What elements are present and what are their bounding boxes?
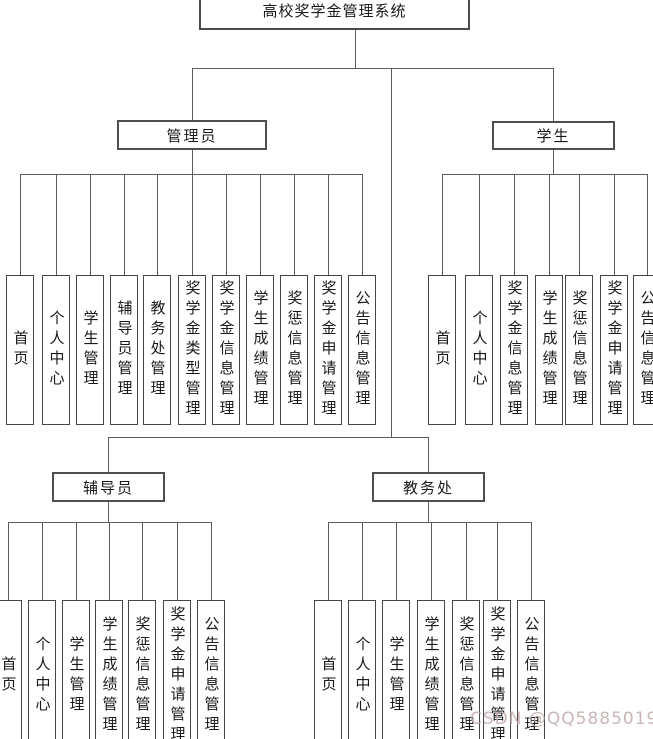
leaf-academic-home: 首页 <box>314 600 342 739</box>
leaf-admin-announcement-info-mgmt: 公告信息管理 <box>348 275 376 425</box>
csdn-watermark: CSDN @QQ58850198 <box>470 709 653 729</box>
leaf-counselor-reward-punishment-info-mgmt: 奖惩信息管理 <box>128 600 156 739</box>
leaf-student-personal-center: 个人中心 <box>465 275 493 425</box>
connector-line <box>549 174 550 275</box>
leaf-admin-scholarship-application-mgmt: 奖学金申请管理 <box>314 275 342 425</box>
leaf-admin-personal-center: 个人中心 <box>42 275 70 425</box>
connector-line <box>8 522 212 523</box>
leaf-admin-academic-office-mgmt: 教务处管理 <box>143 275 171 425</box>
connector-line <box>442 174 648 175</box>
connector-line <box>479 174 480 275</box>
connector-line <box>142 522 143 600</box>
connector-line <box>396 522 397 600</box>
connector-line <box>56 174 57 275</box>
connector-line <box>428 502 429 522</box>
leaf-student-home: 首页 <box>428 275 456 425</box>
connector-line <box>108 502 109 522</box>
leaf-admin-student-grade-mgmt: 学生成绩管理 <box>246 275 274 425</box>
connector-line <box>226 174 227 275</box>
leaf-student-scholarship-application-mgmt: 奖学金申请管理 <box>600 275 628 425</box>
leaf-student-student-grade-mgmt: 学生成绩管理 <box>535 275 563 425</box>
connector-line <box>362 522 363 600</box>
leaf-counselor-home: 首页 <box>0 600 22 739</box>
connector-line <box>553 68 554 121</box>
connector-line <box>328 174 329 275</box>
connector-line <box>108 437 429 438</box>
leaf-counselor-announcement-info-mgmt: 公告信息管理 <box>197 600 225 739</box>
connector-line <box>442 174 443 275</box>
node-admin: 管理员 <box>117 120 267 150</box>
connector-line <box>328 522 329 600</box>
connector-line <box>362 174 363 275</box>
connector-line <box>8 522 9 600</box>
connector-line <box>431 522 432 600</box>
connector-line <box>579 174 580 275</box>
leaf-academic-personal-center: 个人中心 <box>348 600 376 739</box>
org-chart: 高校奖学金管理系统 管理员 学生 辅导员 教务处 首页 个人中心 学生管理 辅导… <box>0 0 653 739</box>
connector-line <box>192 68 193 120</box>
node-academic-office: 教务处 <box>372 472 485 502</box>
leaf-student-reward-punishment-info-mgmt: 奖惩信息管理 <box>565 275 593 425</box>
leaf-academic-student-grade-mgmt: 学生成绩管理 <box>417 600 445 739</box>
connector-line <box>124 174 125 275</box>
connector-line <box>177 522 178 600</box>
leaf-counselor-scholarship-application-mgmt: 奖学金申请管理 <box>163 600 191 739</box>
leaf-admin-home: 首页 <box>6 275 34 425</box>
connector-line <box>157 174 158 275</box>
leaf-admin-scholarship-info-mgmt: 奖学金信息管理 <box>212 275 240 425</box>
connector-line <box>192 68 554 69</box>
leaf-admin-scholarship-type-mgmt: 奖学金类型管理 <box>178 275 206 425</box>
connector-line <box>466 522 467 600</box>
leaf-admin-counselor-mgmt: 辅导员管理 <box>110 275 138 425</box>
connector-line <box>514 174 515 275</box>
node-root-title: 高校奖学金管理系统 <box>199 0 470 30</box>
connector-line <box>294 174 295 275</box>
leaf-counselor-personal-center: 个人中心 <box>28 600 56 739</box>
connector-line <box>647 174 648 275</box>
connector-line <box>192 174 193 275</box>
connector-line <box>109 522 110 600</box>
leaf-student-scholarship-info-mgmt: 奖学金信息管理 <box>500 275 528 425</box>
connector-line <box>497 522 498 600</box>
connector-line <box>355 30 356 68</box>
leaf-student-announcement-info-mgmt: 公告信息管理 <box>633 275 653 425</box>
connector-line <box>42 522 43 600</box>
connector-line <box>391 68 392 437</box>
node-counselor: 辅导员 <box>52 472 165 502</box>
connector-line <box>90 174 91 275</box>
connector-line <box>531 522 532 600</box>
connector-line <box>108 437 109 472</box>
node-student: 学生 <box>492 121 615 150</box>
connector-line <box>553 150 554 174</box>
leaf-counselor-student-grade-mgmt: 学生成绩管理 <box>95 600 123 739</box>
connector-line <box>76 522 77 600</box>
leaf-counselor-student-mgmt: 学生管理 <box>62 600 90 739</box>
leaf-admin-reward-punishment-info-mgmt: 奖惩信息管理 <box>280 275 308 425</box>
connector-line <box>20 174 21 275</box>
connector-line <box>211 522 212 600</box>
leaf-academic-student-mgmt: 学生管理 <box>382 600 410 739</box>
connector-line <box>428 437 429 472</box>
connector-line <box>260 174 261 275</box>
leaf-admin-student-mgmt: 学生管理 <box>76 275 104 425</box>
connector-line <box>614 174 615 275</box>
connector-line <box>328 522 532 523</box>
connector-line <box>192 150 193 174</box>
